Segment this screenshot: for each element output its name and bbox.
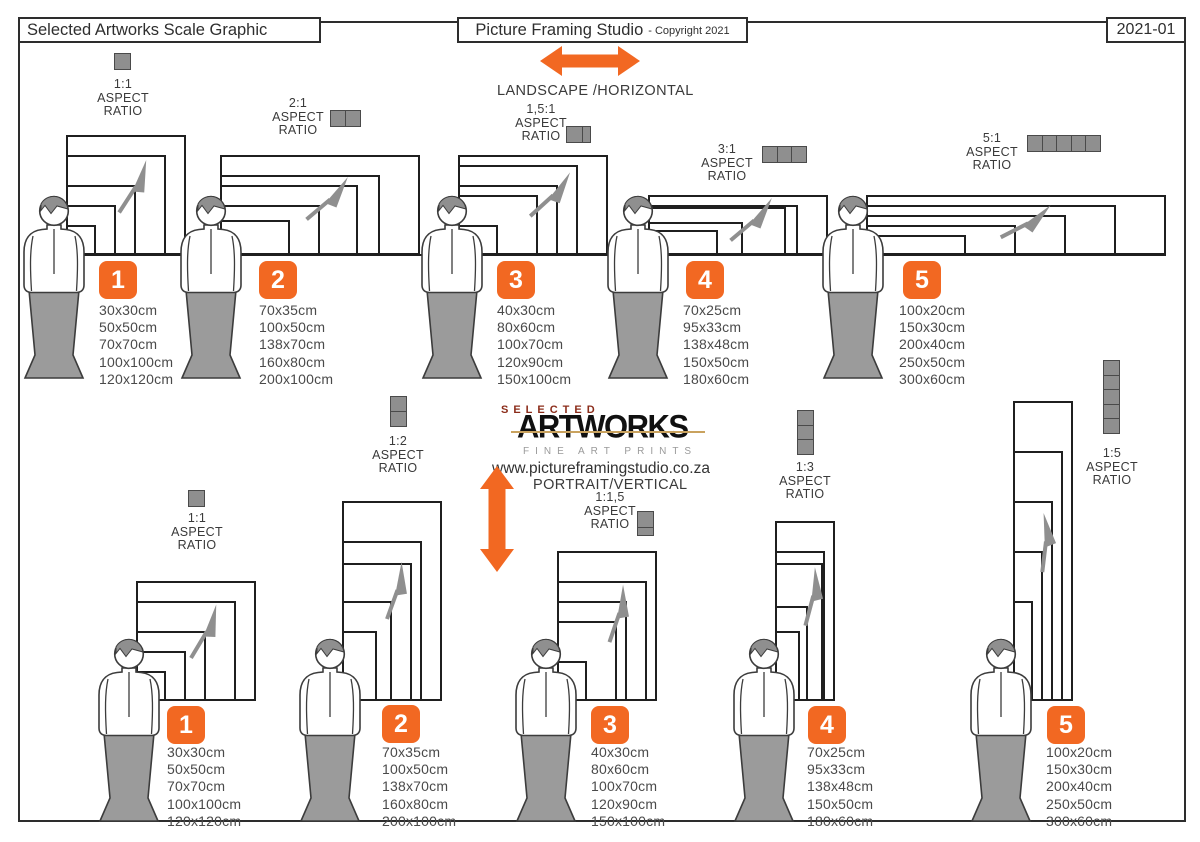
- logo-artworks-text: ARTWORKS: [517, 408, 688, 445]
- size-list: 70x25cm95x33cm138x48cm150x50cm180x60cm: [807, 744, 873, 830]
- size-list: 70x35cm100x50cm138x70cm160x80cm200x100cm: [259, 302, 333, 388]
- aspect-ratio-label: 1:3ASPECTRATIO: [760, 461, 850, 502]
- size-item: 138x70cm: [382, 778, 456, 795]
- aspect-units-icon: [566, 126, 591, 143]
- person-figure: [416, 195, 488, 381]
- aspect-units-icon: [390, 396, 407, 427]
- studio-title-box: Picture Framing Studio - Copyright 2021: [457, 17, 748, 43]
- size-item: 50x50cm: [167, 761, 241, 778]
- size-item: 30x30cm: [99, 302, 173, 319]
- size-item: 200x40cm: [1046, 778, 1112, 795]
- ratio-label-line: ASPECT: [947, 146, 1037, 160]
- ratio-label-line: 1:3: [760, 461, 850, 475]
- ratio-label-line: 1:1: [152, 512, 242, 526]
- size-item: 100x100cm: [99, 354, 173, 371]
- size-item: 150x100cm: [591, 813, 665, 830]
- unit-square: [566, 126, 583, 143]
- group-number-badge: 2: [259, 261, 297, 299]
- aspect-units-icon: [797, 410, 814, 455]
- unit-square: [188, 490, 205, 507]
- size-item: 300x60cm: [1046, 813, 1112, 830]
- person-figure: [93, 638, 165, 824]
- size-item: 100x70cm: [497, 336, 571, 353]
- logo-tagline-text: FINE ART PRINTS: [523, 446, 697, 457]
- size-item: 100x20cm: [899, 302, 965, 319]
- size-item: 80x60cm: [591, 761, 665, 778]
- aspect-ratio-label: 1:5ASPECTRATIO: [1067, 447, 1157, 488]
- size-list: 70x25cm95x33cm138x48cm150x50cm180x60cm: [683, 302, 749, 388]
- size-item: 138x48cm: [683, 336, 749, 353]
- aspect-units-icon: [637, 511, 654, 536]
- unit-square: [1085, 135, 1101, 152]
- size-item: 300x60cm: [899, 371, 965, 388]
- scale-graphic-page: Selected Artworks Scale Graphic Picture …: [0, 0, 1200, 842]
- size-item: 150x30cm: [899, 319, 965, 336]
- person-figure: [510, 638, 582, 824]
- size-item: 70x35cm: [382, 744, 456, 761]
- size-item: 250x50cm: [899, 354, 965, 371]
- landscape-section-heading: LANDSCAPE /HORIZONTAL: [497, 83, 694, 99]
- size-item: 150x100cm: [497, 371, 571, 388]
- group-number-badge: 5: [903, 261, 941, 299]
- unit-square: [114, 53, 131, 70]
- group-number-badge: 4: [686, 261, 724, 299]
- size-item: 150x30cm: [1046, 761, 1112, 778]
- logo-strike-line: [511, 431, 705, 433]
- ratio-label-line: 1,5:1: [496, 103, 586, 117]
- person-figure: [728, 638, 800, 824]
- size-item: 40x30cm: [591, 744, 665, 761]
- size-item: 250x50cm: [1046, 796, 1112, 813]
- aspect-units-icon: [330, 110, 361, 127]
- ratio-label-line: RATIO: [1067, 474, 1157, 488]
- size-item: 100x50cm: [382, 761, 456, 778]
- size-item: 95x33cm: [807, 761, 873, 778]
- page-title: Selected Artworks Scale Graphic: [27, 21, 267, 40]
- ratio-label-line: RATIO: [947, 159, 1037, 173]
- size-item: 200x40cm: [899, 336, 965, 353]
- aspect-ratio-label: 3:1ASPECTRATIO: [682, 143, 772, 184]
- person-figure: [175, 195, 247, 381]
- person-figure: [18, 195, 90, 381]
- size-item: 180x60cm: [683, 371, 749, 388]
- size-item: 70x70cm: [167, 778, 241, 795]
- size-item: 40x30cm: [497, 302, 571, 319]
- aspect-units-icon: [762, 146, 807, 163]
- ratio-label-line: ASPECT: [152, 526, 242, 540]
- size-list: 40x30cm80x60cm100x70cm120x90cm150x100cm: [591, 744, 665, 830]
- ratio-label-line: 1:5: [1067, 447, 1157, 461]
- group-number-badge: 3: [591, 706, 629, 744]
- aspect-units-icon: [1103, 360, 1120, 434]
- size-item: 70x70cm: [99, 336, 173, 353]
- size-item: 95x33cm: [683, 319, 749, 336]
- size-item: 120x90cm: [591, 796, 665, 813]
- ratio-label-line: ASPECT: [78, 92, 168, 106]
- ratio-label-line: 1:1,5: [565, 491, 655, 505]
- portrait-direction-arrow-icon: [479, 466, 515, 572]
- size-list: 30x30cm50x50cm70x70cm100x100cm120x120cm: [99, 302, 173, 388]
- doc-number: 2021-01: [1117, 21, 1176, 39]
- size-item: 200x100cm: [259, 371, 333, 388]
- ratio-label-line: 1:1: [78, 78, 168, 92]
- person-figure: [294, 638, 366, 824]
- ratio-label-line: ASPECT: [760, 475, 850, 489]
- unit-square: [637, 527, 654, 536]
- ratio-label-line: ASPECT: [1067, 461, 1157, 475]
- size-list: 40x30cm80x60cm100x70cm120x90cm150x100cm: [497, 302, 571, 388]
- size-item: 70x25cm: [683, 302, 749, 319]
- size-item: 200x100cm: [382, 813, 456, 830]
- ratio-label-line: 2:1: [253, 97, 343, 111]
- size-item: 120x120cm: [99, 371, 173, 388]
- unit-square: [791, 146, 807, 163]
- size-item: 70x25cm: [807, 744, 873, 761]
- size-item: 30x30cm: [167, 744, 241, 761]
- studio-title: Picture Framing Studio: [475, 21, 643, 40]
- size-item: 100x70cm: [591, 778, 665, 795]
- ratio-label-line: RATIO: [78, 105, 168, 119]
- group-number-badge: 3: [497, 261, 535, 299]
- landscape-direction-arrow-icon: [540, 44, 640, 78]
- group-number-badge: 5: [1047, 706, 1085, 744]
- size-item: 120x90cm: [497, 354, 571, 371]
- unit-square: [582, 126, 591, 143]
- aspect-ratio-label: 1:2ASPECTRATIO: [353, 435, 443, 476]
- copyright-text: - Copyright 2021: [648, 23, 729, 37]
- size-item: 100x20cm: [1046, 744, 1112, 761]
- size-list: 70x35cm100x50cm138x70cm160x80cm200x100cm: [382, 744, 456, 830]
- unit-square: [345, 110, 361, 127]
- size-item: 138x48cm: [807, 778, 873, 795]
- size-list: 100x20cm150x30cm200x40cm250x50cm300x60cm: [899, 302, 965, 388]
- person-figure: [965, 638, 1037, 824]
- ratio-label-line: ASPECT: [682, 157, 772, 171]
- aspect-ratio-label: 1:1ASPECTRATIO: [152, 512, 242, 553]
- ratio-label-line: 5:1: [947, 132, 1037, 146]
- unit-square: [637, 511, 654, 528]
- unit-square: [390, 411, 407, 427]
- website-url: www.pictureframingstudio.co.za: [492, 460, 710, 478]
- size-item: 160x80cm: [382, 796, 456, 813]
- ratio-label-line: RATIO: [760, 488, 850, 502]
- unit-square: [1103, 418, 1120, 434]
- group-number-badge: 1: [99, 261, 137, 299]
- size-item: 150x50cm: [807, 796, 873, 813]
- person-figure: [817, 195, 889, 381]
- page-title-box: Selected Artworks Scale Graphic: [18, 17, 321, 43]
- ratio-label-line: 1:2: [353, 435, 443, 449]
- size-list: 100x20cm150x30cm200x40cm250x50cm300x60cm: [1046, 744, 1112, 830]
- ratio-label-line: ASPECT: [353, 449, 443, 463]
- size-item: 138x70cm: [259, 336, 333, 353]
- doc-number-box: 2021-01: [1106, 17, 1186, 43]
- group-number-badge: 1: [167, 706, 205, 744]
- ratio-label-line: RATIO: [682, 170, 772, 184]
- unit-square: [797, 439, 814, 455]
- aspect-units-icon: [114, 53, 131, 70]
- size-item: 70x35cm: [259, 302, 333, 319]
- size-item: 180x60cm: [807, 813, 873, 830]
- aspect-ratio-label: 5:1ASPECTRATIO: [947, 132, 1037, 173]
- size-item: 100x50cm: [259, 319, 333, 336]
- aspect-units-icon: [188, 490, 205, 507]
- size-item: 160x80cm: [259, 354, 333, 371]
- ratio-label-line: RATIO: [152, 539, 242, 553]
- ratio-label-line: 3:1: [682, 143, 772, 157]
- size-item: 80x60cm: [497, 319, 571, 336]
- ratio-label-line: RATIO: [353, 462, 443, 476]
- portrait-section-heading: PORTRAIT/VERTICAL: [533, 477, 688, 493]
- person-figure: [602, 195, 674, 381]
- size-item: 50x50cm: [99, 319, 173, 336]
- group-number-badge: 2: [382, 705, 420, 743]
- size-item: 150x50cm: [683, 354, 749, 371]
- size-item: 100x100cm: [167, 796, 241, 813]
- group-number-badge: 4: [808, 706, 846, 744]
- size-list: 30x30cm50x50cm70x70cm100x100cm120x120cm: [167, 744, 241, 830]
- size-item: 120x120cm: [167, 813, 241, 830]
- aspect-ratio-label: 1:1ASPECTRATIO: [78, 78, 168, 119]
- artworks-logo: SELECTED ARTWORKS FINE ART PRINTS: [493, 404, 711, 459]
- aspect-units-icon: [1027, 135, 1101, 152]
